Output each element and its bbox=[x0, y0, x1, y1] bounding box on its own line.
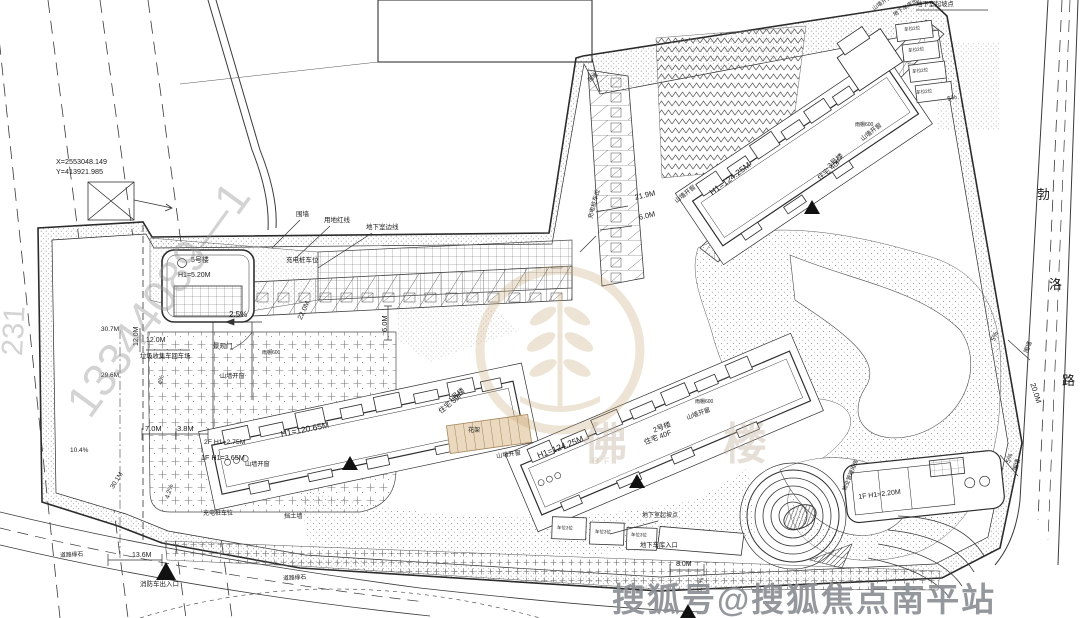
podium-f2: 2F H1=2.75M bbox=[204, 440, 245, 447]
label-charging-3: 充电桩车位 bbox=[203, 511, 233, 517]
dim-6-0-b: 6.0M bbox=[381, 315, 389, 332]
logo-watermark-sub: OF bbox=[592, 456, 615, 466]
label-curb-2: 道路缘石 bbox=[283, 576, 306, 583]
road-name-char-1: 勃 bbox=[1037, 188, 1050, 201]
survey-y: Y=413921.985 bbox=[56, 168, 103, 175]
dim-3-8: 3.8M bbox=[177, 425, 194, 433]
label-retaining-wall: 挡土墙 bbox=[284, 514, 303, 520]
label-gable-1: 山墙开窗 bbox=[220, 374, 245, 380]
neighbor-building bbox=[180, 0, 600, 92]
label-landscape-gate: 景观门 bbox=[213, 344, 233, 351]
dim-8-0: 8.0M bbox=[676, 561, 692, 568]
dim-13-6: 13.6M bbox=[132, 552, 151, 559]
label-red-line: 用地红线 bbox=[324, 218, 350, 225]
label-canopy-2: 雨棚600 bbox=[695, 400, 713, 405]
label-fire-entrance: 消防车出入口 bbox=[140, 582, 179, 589]
label-canopy-1: 雨棚600 bbox=[262, 351, 280, 356]
label-charging-1: 充电桩车位 bbox=[286, 258, 319, 265]
podium-f1: 1F H1=3.65M bbox=[201, 454, 245, 461]
sohu-watermark: 搜狐号@搜狐焦点南平站 bbox=[612, 573, 996, 618]
road-name-char-2: 洛 bbox=[1049, 278, 1062, 291]
dim-7-0: 7.0M bbox=[145, 425, 162, 433]
serial-watermark-left: 231 bbox=[0, 305, 33, 357]
dim-10-4pct: 10.4% bbox=[70, 448, 88, 455]
label-garage-entrance: 地下车库入口 bbox=[640, 543, 678, 549]
label-slope-start-s: 地下室起坡点 bbox=[642, 513, 678, 519]
label-slope-start-ne: 地下室起坡点 bbox=[916, 2, 954, 8]
label-gable-2: 山墙开窗 bbox=[245, 462, 270, 468]
site-plan-screenshot: 围墙 围墙 围墙 围墙 用地红线 地下室边线 充电桩车位 充电桩车位 充电桩车位… bbox=[0, 0, 1080, 618]
stall-box-s-1: 车位3位 bbox=[557, 526, 573, 531]
stall-box-s-2: 车位3位 bbox=[595, 530, 611, 535]
logo-watermark-char-2: 楼 bbox=[723, 408, 767, 472]
label-fence-1: 围墙 bbox=[296, 212, 309, 219]
stall-box-s-3: 车位3位 bbox=[631, 533, 647, 538]
survey-x: X=2553048.149 bbox=[56, 158, 107, 165]
label-basement-edge: 地下室边线 bbox=[366, 225, 399, 232]
road-name-char-3: 路 bbox=[1062, 374, 1075, 387]
label-curb-1: 道路缘石 bbox=[60, 553, 83, 560]
dim-2-5pct: 2.5% bbox=[229, 311, 247, 319]
label-pergola: 花架 bbox=[468, 428, 480, 434]
label-canopy-3: 雨棚600 bbox=[855, 123, 873, 128]
